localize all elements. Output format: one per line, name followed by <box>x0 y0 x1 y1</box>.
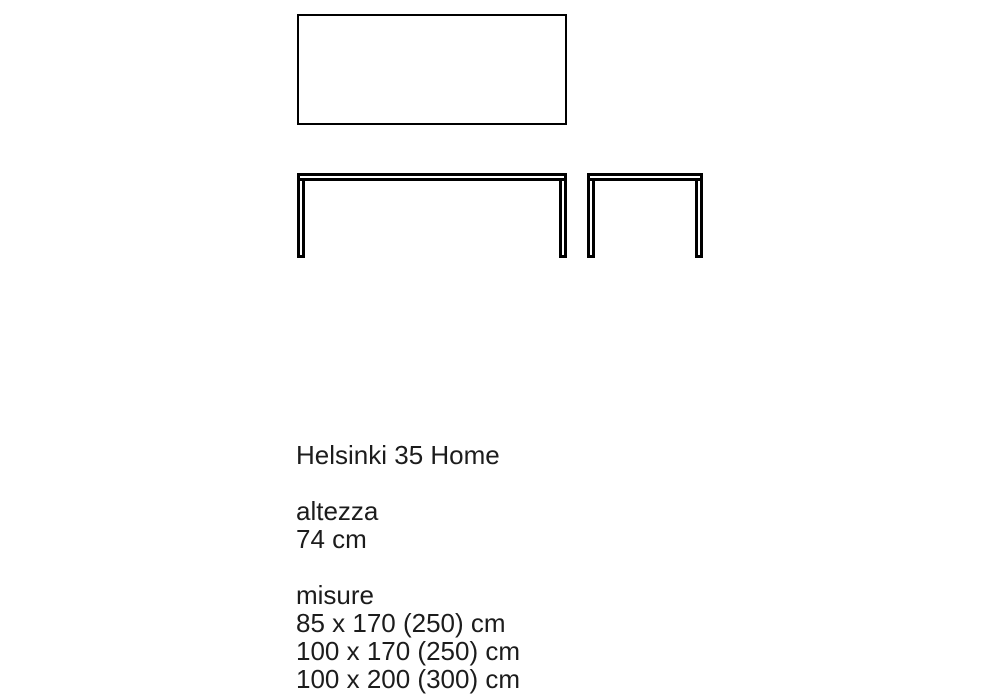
height-value: 74 cm <box>296 525 520 553</box>
table-leg <box>695 173 703 258</box>
product-spec-sheet: Helsinki 35 Home altezza 74 cm misure 85… <box>0 0 1000 700</box>
product-specs: Helsinki 35 Home altezza 74 cm misure 85… <box>296 441 520 693</box>
sizes-section: misure 85 x 170 (250) cm 100 x 170 (250)… <box>296 581 520 693</box>
size-option: 85 x 170 (250) cm <box>296 609 520 637</box>
size-option: 100 x 200 (300) cm <box>296 665 520 693</box>
height-section: altezza 74 cm <box>296 497 520 553</box>
table-leg <box>559 173 567 258</box>
table-top-rail <box>587 173 703 181</box>
product-title: Helsinki 35 Home <box>296 441 520 469</box>
table-leg <box>587 173 595 258</box>
table-top-rail <box>297 173 567 181</box>
table-top-view <box>297 14 567 125</box>
table-leg <box>297 173 305 258</box>
sizes-label: misure <box>296 581 520 609</box>
size-option: 100 x 170 (250) cm <box>296 637 520 665</box>
height-label: altezza <box>296 497 520 525</box>
